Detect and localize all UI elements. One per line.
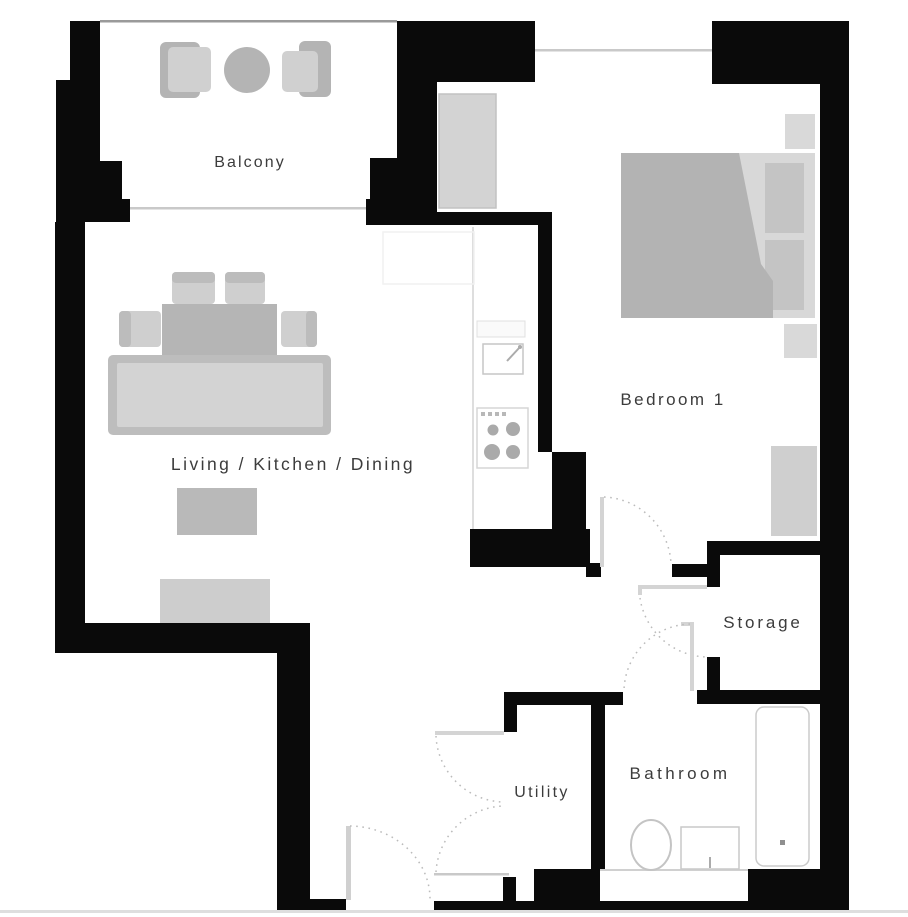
svg-text:Living / Kitchen / Dining: Living / Kitchen / Dining: [171, 454, 415, 474]
svg-text:Utility: Utility: [514, 784, 570, 801]
svg-text:Bedroom 1: Bedroom 1: [620, 390, 725, 409]
svg-text:Storage: Storage: [723, 613, 803, 632]
svg-text:Bathroom: Bathroom: [630, 764, 731, 783]
svg-text:Balcony: Balcony: [214, 154, 286, 171]
